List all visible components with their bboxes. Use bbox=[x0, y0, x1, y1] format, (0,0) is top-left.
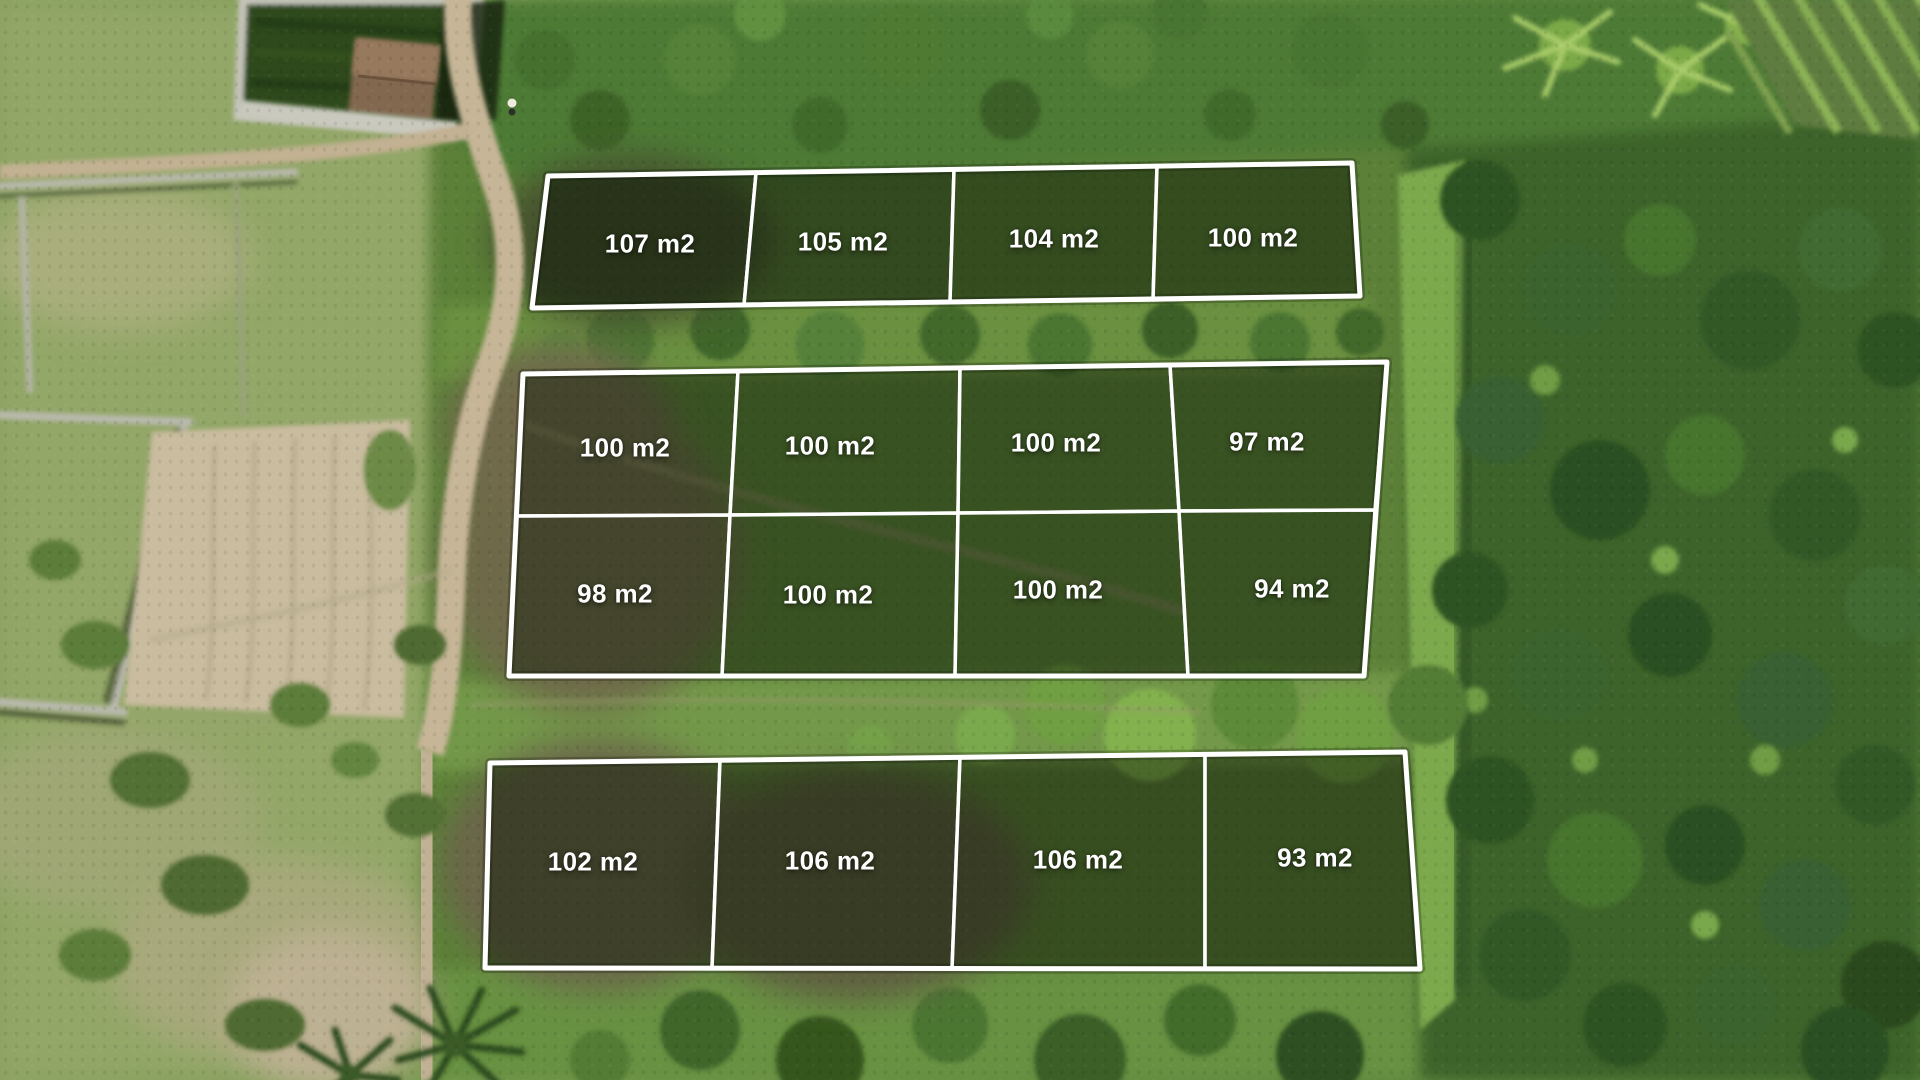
plot-region bbox=[722, 513, 958, 676]
plot-boundaries-overlay bbox=[0, 0, 1920, 1080]
plot-region bbox=[509, 515, 730, 676]
plot-region bbox=[532, 173, 756, 308]
plot-region bbox=[955, 511, 1188, 676]
plot-region bbox=[1170, 362, 1387, 511]
plot-region bbox=[952, 754, 1205, 969]
plot-region bbox=[950, 166, 1157, 302]
plot-region bbox=[1179, 510, 1375, 676]
plot-region bbox=[516, 371, 738, 516]
plot-region bbox=[958, 365, 1179, 513]
plot-region bbox=[744, 169, 954, 305]
plot-region bbox=[485, 760, 720, 968]
plot-group-south bbox=[485, 752, 1420, 969]
plot-region bbox=[712, 757, 960, 969]
plot-group-middle bbox=[509, 362, 1387, 676]
plot-region bbox=[1153, 163, 1360, 300]
plot-group-north bbox=[532, 163, 1360, 308]
plot-region bbox=[1205, 752, 1420, 969]
aerial-drone-photo: 107 m2 105 m2 104 m2 100 m2 100 m2 100 m… bbox=[0, 0, 1920, 1080]
plot-region bbox=[730, 368, 960, 515]
